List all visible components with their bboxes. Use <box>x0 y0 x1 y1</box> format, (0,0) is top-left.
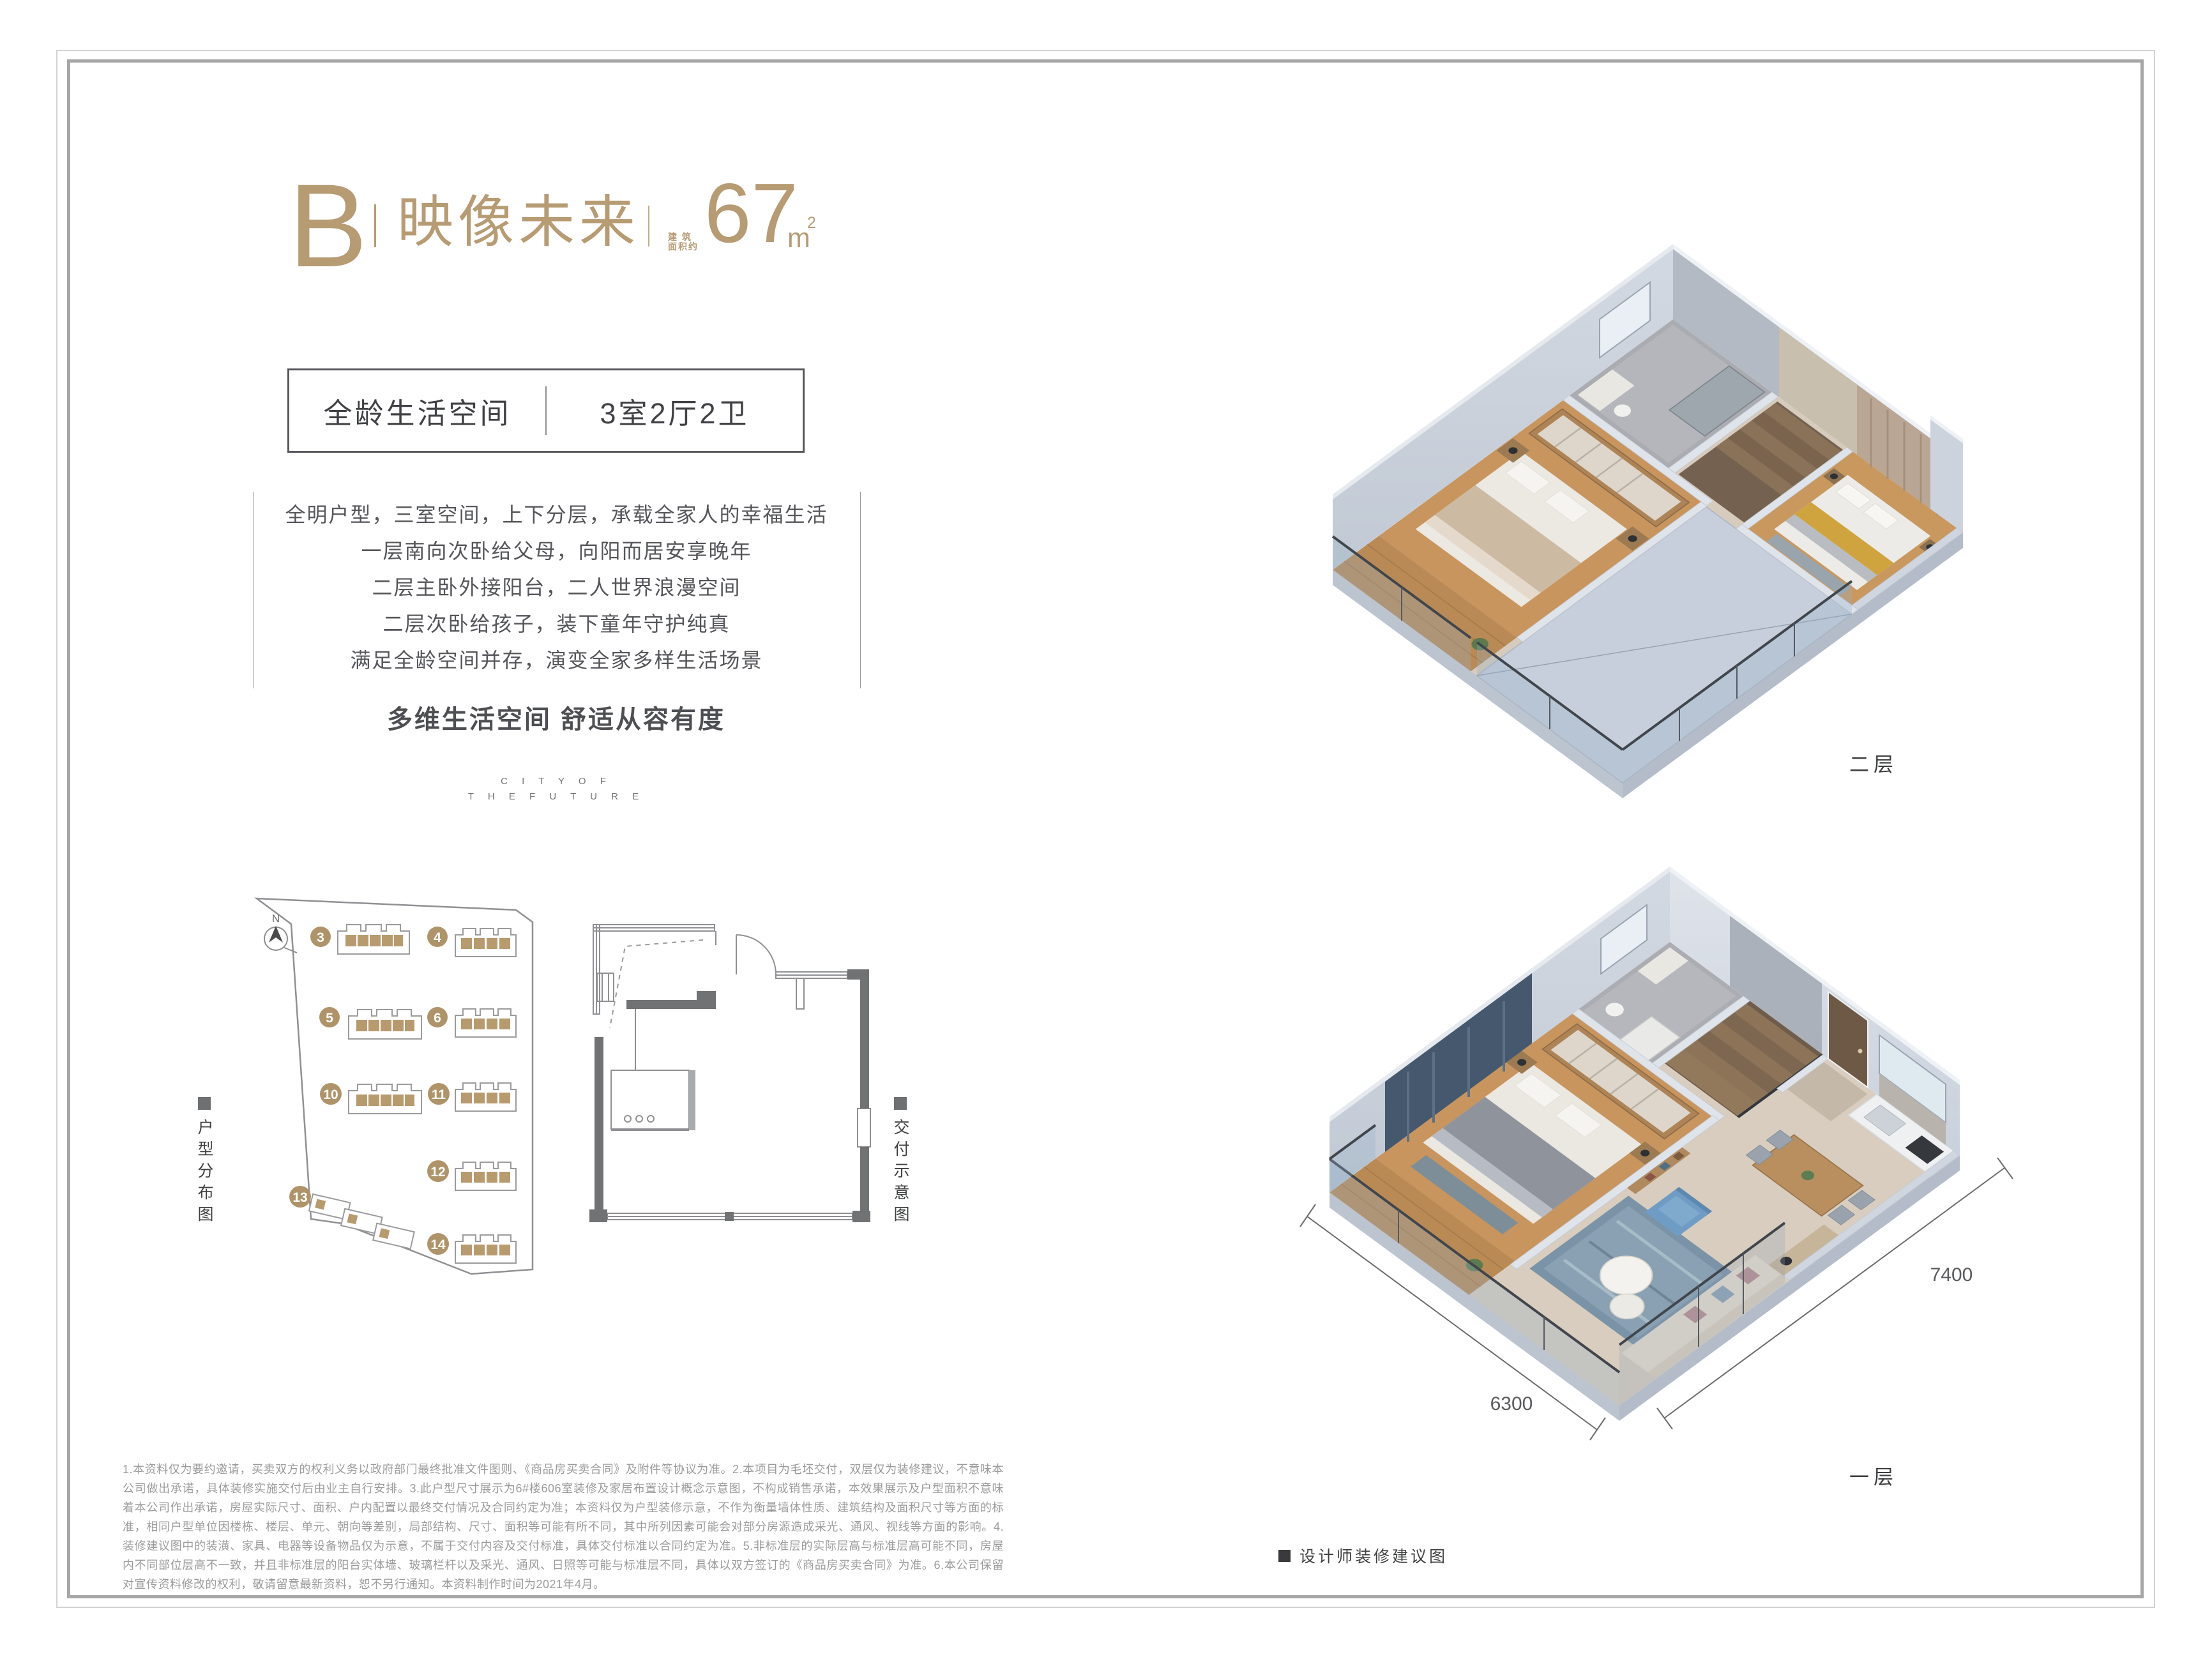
render-first-floor: 6300 7400 <box>1300 867 2013 1440</box>
svg-text:N: N <box>272 913 280 925</box>
plan-walls <box>589 969 870 1222</box>
svg-text:10: 10 <box>323 1087 338 1102</box>
svg-text:14: 14 <box>430 1238 446 1252</box>
delivery-floor-plan <box>589 925 870 1222</box>
svg-text:13: 13 <box>292 1190 307 1205</box>
stair-direction-dashed-line <box>610 940 703 1028</box>
brochure-page: B 映像未来 建 筑 面积约 67 m 2 全龄生活空间 3室2厅2卫 全明户型… <box>0 0 2212 1659</box>
dim-right-label: 7400 <box>1930 1264 1973 1285</box>
render-second-floor <box>1333 244 1963 798</box>
svg-text:3: 3 <box>317 930 324 945</box>
svg-text:6: 6 <box>434 1011 441 1026</box>
dim-bottom-label: 6300 <box>1490 1393 1533 1414</box>
svg-text:5: 5 <box>326 1011 333 1026</box>
graphics-layer: N <box>0 0 2212 1659</box>
svg-text:12: 12 <box>430 1165 445 1179</box>
site-map: N <box>257 898 533 1274</box>
svg-text:4: 4 <box>434 930 441 945</box>
svg-text:11: 11 <box>432 1087 446 1102</box>
